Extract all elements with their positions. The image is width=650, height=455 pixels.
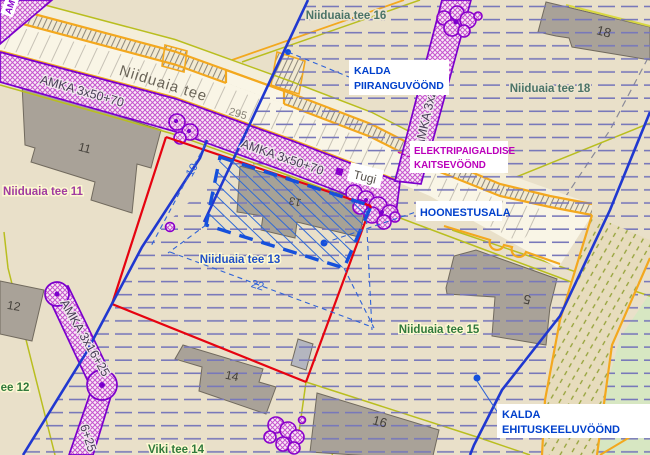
svg-text:KALDA: KALDA: [354, 65, 391, 77]
svg-text:Niiduaia tee 13: Niiduaia tee 13: [200, 254, 281, 266]
svg-text:EHITUSKEELUVÖÖND: EHITUSKEELUVÖÖND: [502, 423, 620, 436]
svg-text:Niiduaia tee 11: Niiduaia tee 11: [3, 186, 84, 198]
svg-text:ee 12: ee 12: [1, 382, 30, 394]
svg-text:HOONESTUSALA: HOONESTUSALA: [420, 207, 511, 219]
svg-text:12: 12: [6, 298, 22, 314]
svg-text:Niiduaia tee 16: Niiduaia tee 16: [306, 10, 387, 22]
svg-text:KALDA: KALDA: [502, 409, 541, 421]
svg-text:ELEKTRIPAIGALDISE: ELEKTRIPAIGALDISE: [414, 146, 516, 157]
svg-text:PIIRANGUVÖÖND: PIIRANGUVÖÖND: [354, 79, 444, 92]
svg-text:Niiduaia tee 15: Niiduaia tee 15: [399, 324, 480, 336]
svg-text:Viki tee 14: Viki tee 14: [148, 444, 205, 455]
svg-text:Niiduaia tee 18: Niiduaia tee 18: [510, 83, 591, 95]
svg-text:KAITSEVÖÖND: KAITSEVÖÖND: [414, 160, 486, 171]
